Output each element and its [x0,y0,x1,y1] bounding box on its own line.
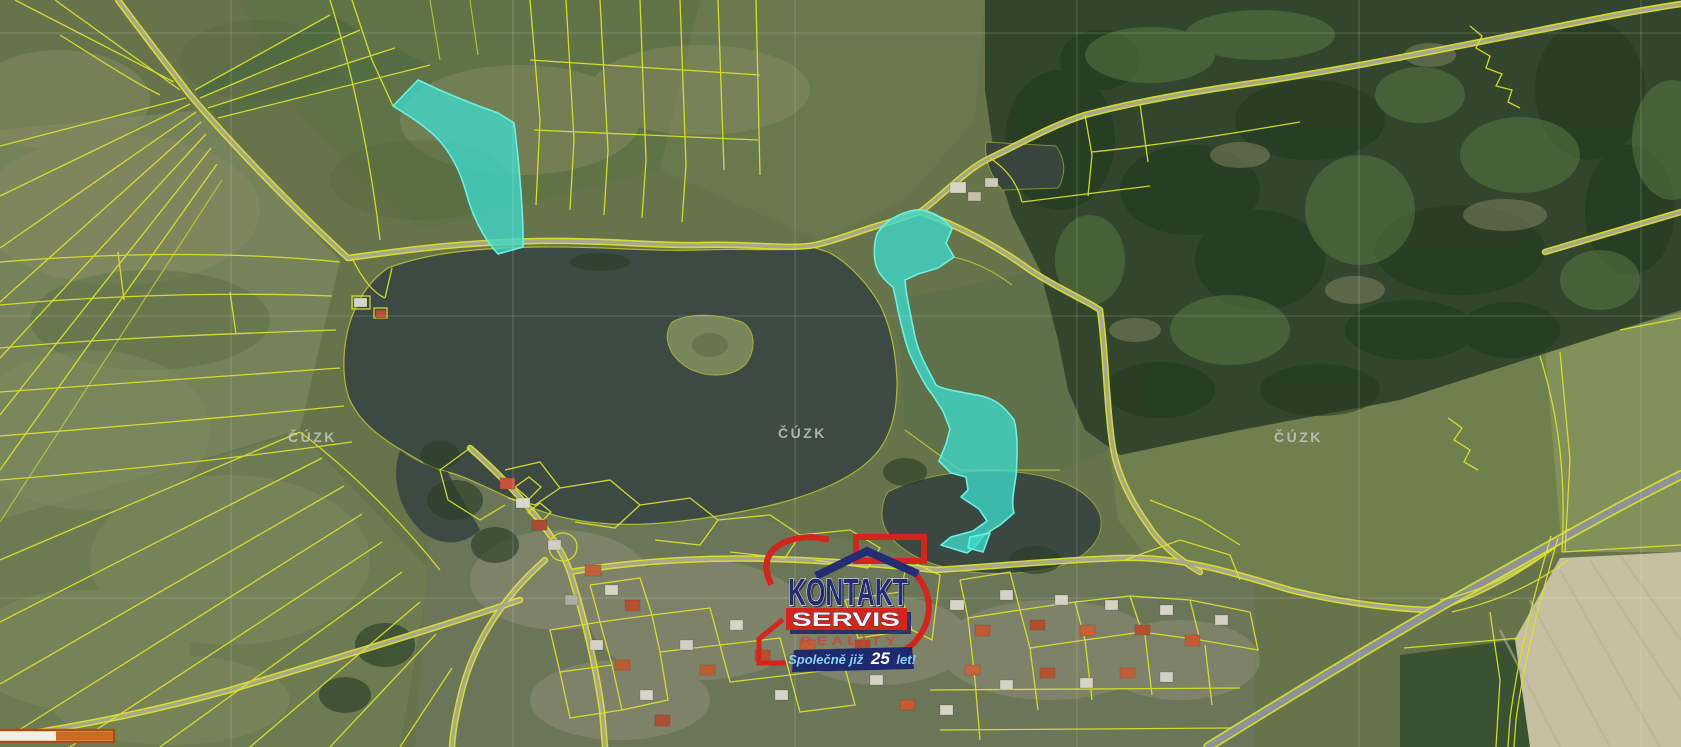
cuzk-watermark-left: ČÚZK [288,428,337,445]
scale-bar-segment [56,732,113,741]
logo-tagline-suffix: let! [896,652,916,667]
logo-brand-kontakt: KONTAKT [788,572,908,614]
cuzk-watermark-right: ČÚZK [1274,428,1323,445]
map-scale-bar [0,730,114,742]
logo-tagline-prefix: Společně již [788,652,864,667]
cuzk-watermark-center: ČÚZK [778,424,827,441]
map-viewport[interactable]: ČÚZK ČÚZK ČÚZK KONTAKT KONTAKT SERVIS R … [0,0,1681,747]
logo-brand-servis: SERVIS [792,610,900,631]
logo-brand-reality: R E A L I T Y [800,634,896,648]
logo-tagline-number: 25 [870,649,890,668]
svg-text:Společně již 25 le: Společně již 25 let! [788,649,916,668]
